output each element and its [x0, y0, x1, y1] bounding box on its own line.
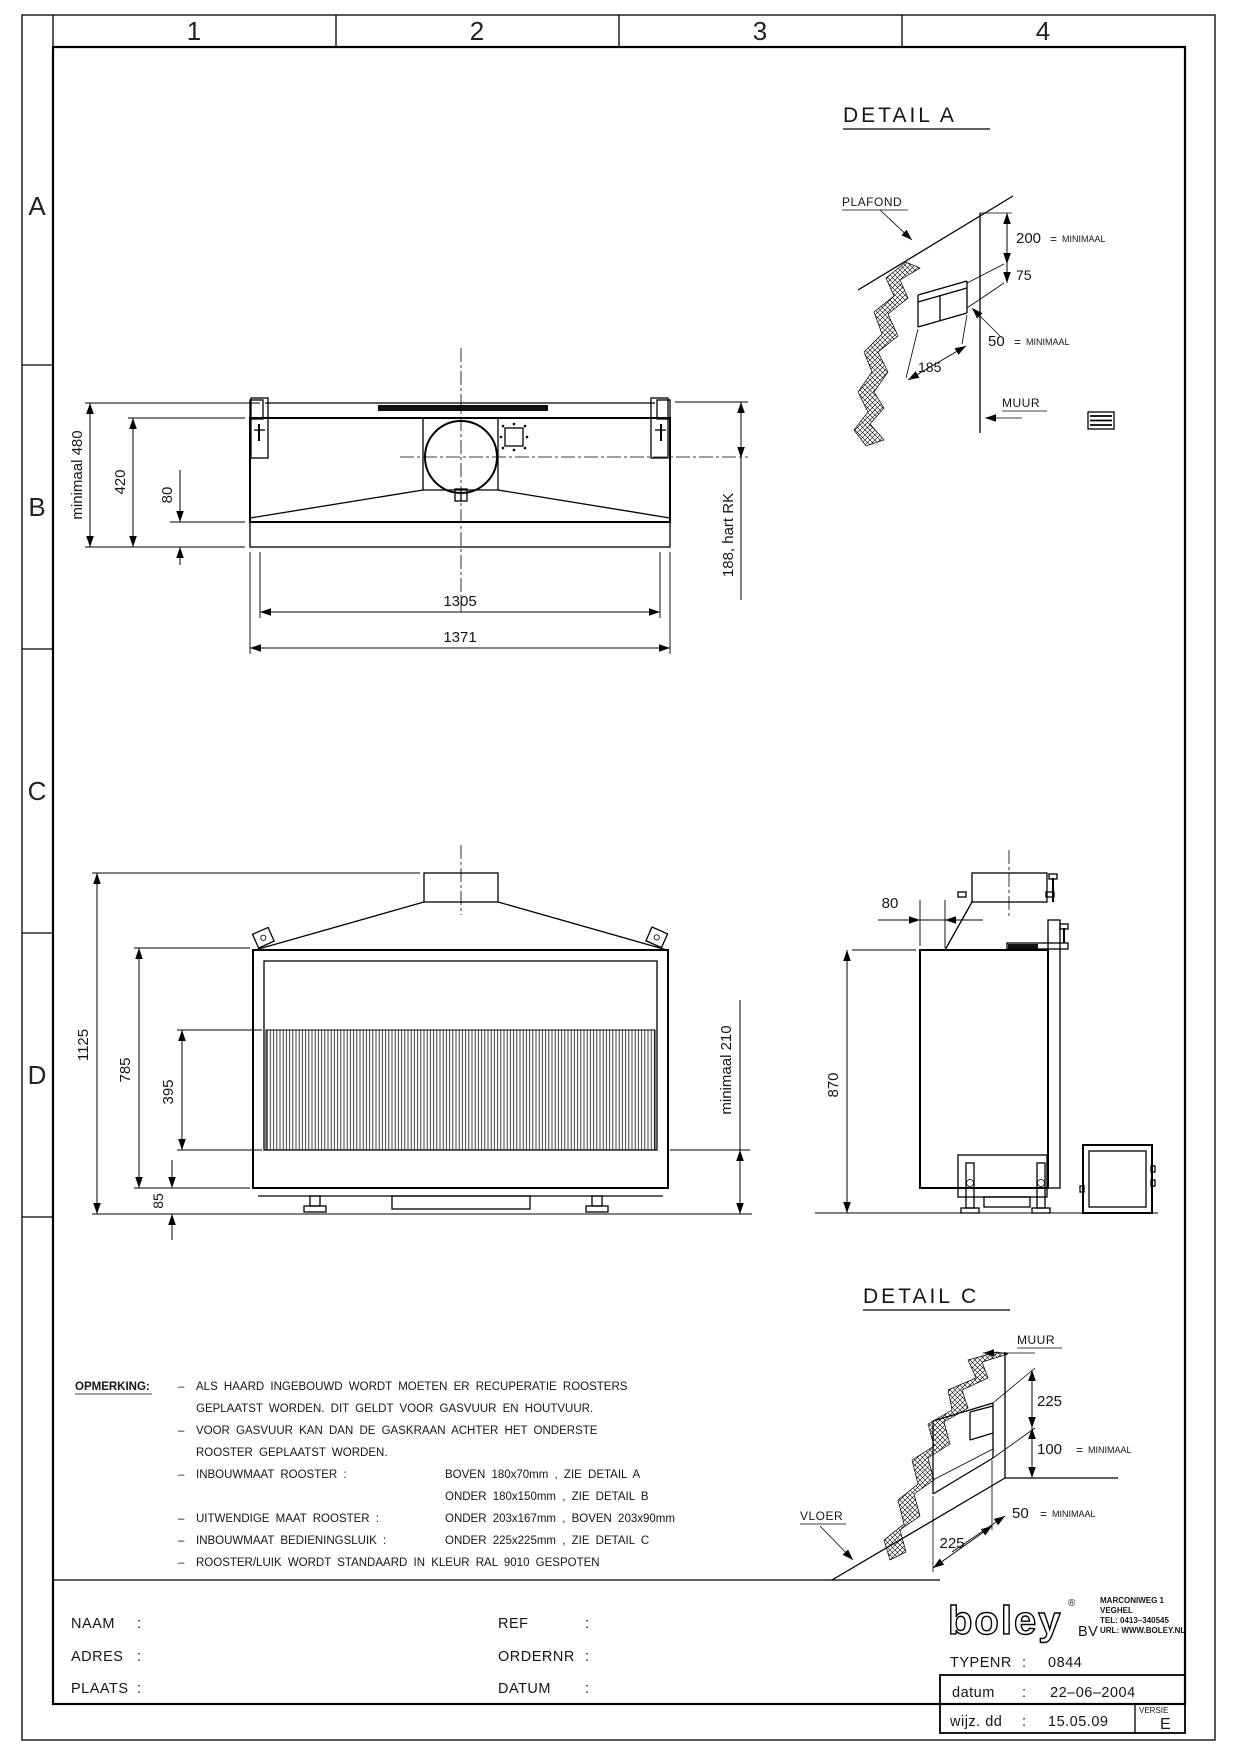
sheet-border: 1 2 3 4 A B C D	[22, 15, 1215, 1740]
grid-row-label: B	[28, 492, 45, 522]
field-label-plaats: PLAATS	[71, 1681, 129, 1697]
datum-label: datum	[952, 1685, 995, 1701]
company-address-line: VEGHEL	[1100, 1606, 1133, 1615]
typenr-sep: :	[1022, 1655, 1027, 1671]
front-view: 1125 785 395 85 minimaal 210	[75, 845, 752, 1240]
notes: OPMERKING: – ALS HAARD INGEBOUWD WORDT M…	[75, 1381, 675, 1569]
note-text: INBOUWMAAT BEDIENINGSLUIK :	[196, 1535, 386, 1547]
field-label-naam: NAAM	[71, 1616, 115, 1632]
dim-eq: =	[1076, 1443, 1083, 1457]
wijz-value: 15.05.09	[1048, 1714, 1108, 1730]
side-view: 80 870	[815, 850, 1158, 1213]
muur-label: MUUR	[1017, 1333, 1055, 1347]
dim-min-label: MINIMAAL	[1088, 1445, 1132, 1455]
dim-label: 50	[988, 333, 1005, 350]
grid-row-label: C	[28, 776, 47, 806]
versie-label: VERSIE	[1139, 1706, 1168, 1715]
field-sep: :	[585, 1681, 590, 1697]
drawing-sheet: 1 2 3 4 A B C D	[0, 0, 1240, 1755]
grid-col-label: 2	[470, 16, 484, 46]
detail-c-title: DETAIL C	[863, 1285, 979, 1308]
note-dash: –	[178, 1381, 185, 1393]
dim-label: 75	[1016, 267, 1032, 283]
field-sep: :	[585, 1649, 590, 1665]
wall-hatch-band	[884, 1352, 1008, 1560]
grid-row-label: A	[28, 191, 46, 221]
flue-collar-side	[972, 873, 1047, 902]
note-dash: –	[178, 1513, 185, 1525]
dim-label: minimaal 210	[718, 1025, 735, 1114]
field-sep: :	[137, 1616, 142, 1632]
foot-left	[304, 1196, 326, 1212]
grid-row-label: D	[28, 1060, 47, 1090]
datum-value: 22–06–2004	[1050, 1685, 1136, 1701]
access-hatch-square	[1080, 1145, 1155, 1213]
note-value: ONDER 180x150mm , ZIE DETAIL B	[445, 1491, 649, 1503]
rear-bracket	[1007, 924, 1068, 949]
dim-label: 225	[939, 1535, 964, 1552]
dim-label: 785	[117, 1057, 134, 1082]
company-address-line: URL: WWW.BOLEY.NL	[1100, 1626, 1185, 1635]
dim-label: 1125	[75, 1029, 92, 1061]
plan-view: minimaal 480 420 80 1305 1371 188, hart …	[69, 348, 748, 654]
note-value: BOVEN 180x70mm , ZIE DETAIL A	[445, 1469, 641, 1481]
muur-label: MUUR	[1002, 396, 1040, 410]
dim-label: 395	[160, 1079, 177, 1104]
note-dash: –	[178, 1469, 185, 1481]
rooster-box	[918, 281, 967, 327]
field-label-datum: DATUM	[498, 1681, 551, 1697]
field-sep: :	[585, 1616, 590, 1632]
dim-label: 185	[918, 359, 942, 375]
note-text: ROOSTER GEPLAATST WORDEN.	[196, 1447, 388, 1459]
dim-label: 225	[1037, 1393, 1062, 1410]
note-text: ROOSTER/LUIK WORDT STANDAARD IN KLEUR RA…	[196, 1557, 600, 1569]
logo-bv: BV	[1078, 1624, 1098, 1640]
dim-label: 1305	[443, 593, 476, 610]
detail-c: DETAIL C MUUR 225 100 = MINIMAAL 50 = MI…	[800, 1285, 1132, 1580]
base-box	[958, 1155, 1047, 1197]
dim-label: 188, hart RK	[720, 493, 737, 577]
dim-label: 420	[112, 469, 129, 494]
dim-eq: =	[1014, 335, 1021, 349]
foot-right	[586, 1196, 608, 1212]
base-tray	[392, 1196, 530, 1209]
wall-bracket-left	[251, 398, 268, 458]
back-panel	[1048, 920, 1060, 1188]
dim-eq: =	[1040, 1507, 1047, 1521]
company-address-line: MARCONIWEG 1	[1100, 1596, 1165, 1605]
plafond-label: PLAFOND	[842, 195, 902, 209]
note-text: GEPLAATST WORDEN. DIT GELDT VOOR GASVUUR…	[196, 1403, 593, 1415]
field-label-ref: REF	[498, 1616, 529, 1632]
note-dash: –	[178, 1425, 185, 1437]
mounting-bar	[378, 405, 548, 411]
dim-min-label: MINIMAAL	[1062, 234, 1106, 244]
dim-label: 50	[1012, 1505, 1029, 1522]
field-sep: :	[137, 1649, 142, 1665]
dim-label: 200	[1016, 230, 1041, 247]
dim-min-label: MINIMAAL	[1052, 1509, 1096, 1519]
note-text: INBOUWMAAT ROOSTER :	[196, 1469, 347, 1481]
note-dash: –	[178, 1535, 185, 1547]
dim-min-label: MINIMAAL	[1026, 337, 1070, 347]
detail-a-title: DETAIL A	[843, 104, 957, 127]
dim-label: 85	[150, 1193, 166, 1209]
side-body	[920, 950, 1048, 1188]
note-text: UITWENDIGE MAAT ROOSTER :	[196, 1513, 379, 1525]
mounting-plate	[500, 423, 529, 452]
wijz-sep: :	[1022, 1714, 1027, 1730]
dim-eq: =	[1050, 232, 1057, 246]
wijz-label: wijz. dd	[949, 1714, 1002, 1730]
note-value: ONDER 203x167mm , BOVEN 203x90mm	[445, 1513, 675, 1525]
detail-a: DETAIL A PLAFOND 200 = MINIMAAL 75 50 = …	[842, 104, 1114, 446]
note-value: ONDER 225x225mm , ZIE DETAIL C	[445, 1535, 649, 1547]
notes-heading: OPMERKING:	[75, 1381, 150, 1393]
grid-col-label: 4	[1036, 16, 1050, 46]
dim-label: 100	[1037, 1441, 1062, 1458]
vloer-label: VLOER	[800, 1509, 843, 1523]
dim-label: 1371	[443, 629, 476, 646]
glass-hatch	[266, 1030, 655, 1150]
grid-col-label: 1	[187, 16, 201, 46]
field-sep: :	[137, 1681, 142, 1697]
wall-hatch-band	[854, 262, 920, 446]
note-text: ALS HAARD INGEBOUWD WORDT MOETEN ER RECU…	[196, 1381, 628, 1393]
dim-label: 80	[159, 487, 176, 504]
typenr-value: 0844	[1048, 1655, 1082, 1671]
dim-label: minimaal 480	[69, 430, 86, 519]
company-address-line: TEL: 0413–340545	[1100, 1616, 1169, 1625]
rooster-grille-icon	[1088, 412, 1114, 429]
logo-registered-icon: ®	[1068, 1598, 1076, 1609]
wall-bracket-right	[651, 398, 668, 458]
note-dash: –	[178, 1557, 185, 1569]
versie-value: E	[1160, 1716, 1171, 1733]
dim-label: 870	[825, 1072, 842, 1097]
boley-logo: boley	[948, 1599, 1062, 1643]
typenr-label: TYPENR	[950, 1655, 1012, 1671]
datum-sep: :	[1022, 1685, 1027, 1701]
drawing-canvas: 1 2 3 4 A B C D	[0, 0, 1240, 1755]
field-label-adres: ADRES	[71, 1649, 123, 1665]
dim-label: 80	[882, 895, 899, 912]
grid-col-label: 3	[753, 16, 767, 46]
title-block: NAAM : ADRES : PLAATS : REF : ORDERNR : …	[53, 1580, 1185, 1733]
field-label-ordernr: ORDERNR	[498, 1649, 575, 1665]
note-text: VOOR GASVUUR KAN DAN DE GASKRAAN ACHTER …	[196, 1425, 598, 1437]
